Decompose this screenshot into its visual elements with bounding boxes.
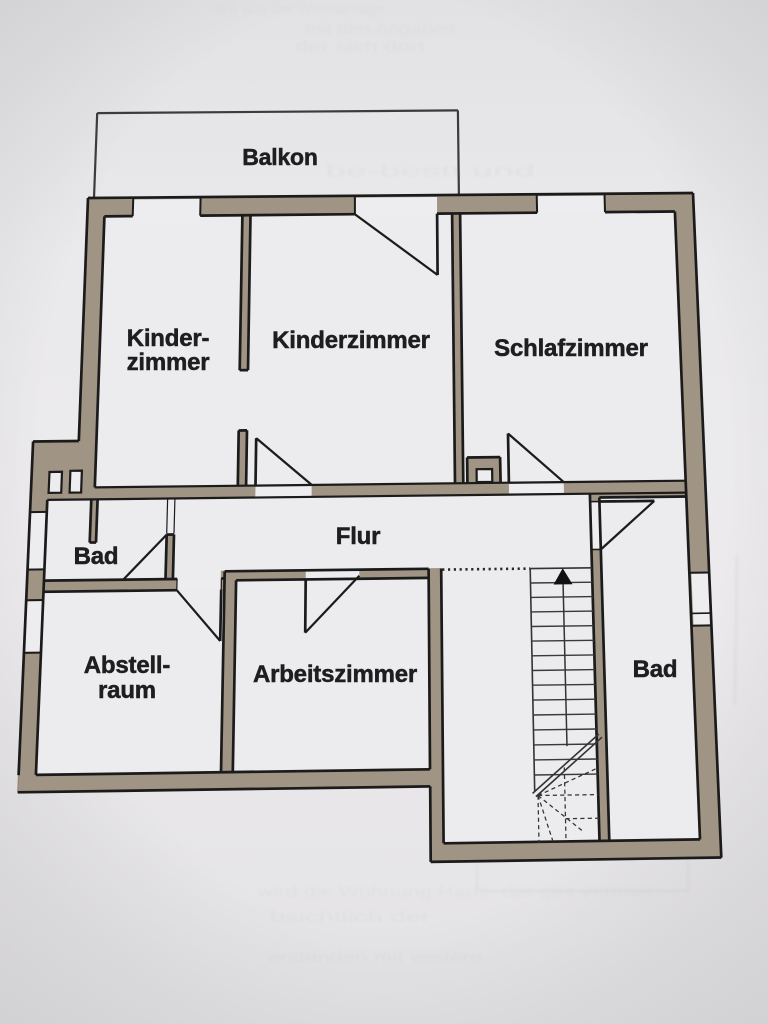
svg-text:Flur: Flur [336, 523, 381, 550]
svg-text:Kinder-: Kinder- [127, 325, 210, 352]
svg-text:be-bestt und: be-bestt und [325, 163, 535, 180]
svg-text:raum: raum [98, 677, 156, 704]
svg-text:Kinderzimmer: Kinderzimmer [272, 327, 430, 354]
svg-text:der sich dort: der sich dort [295, 39, 426, 56]
svg-text:Bad: Bad [74, 543, 119, 570]
svg-text:wird die Wohnung Haus- der ges: wird die Wohnung Haus- der ges vermiet [256, 884, 653, 901]
svg-text:mit den Angaben: mit den Angaben [305, 21, 455, 38]
svg-text:zimmer: zimmer [127, 349, 210, 376]
svg-text:ern aus der Wohnanlage: ern aus der Wohnanlage [215, 1, 385, 18]
svg-text:Abstell-: Abstell- [84, 652, 171, 679]
svg-text:Arbeitszimmer: Arbeitszimmer [253, 661, 417, 688]
svg-text:Balkon: Balkon [242, 144, 317, 170]
svg-text:Schlafzimmer: Schlafzimmer [494, 335, 648, 362]
svg-text:bsichtlich der: bsichtlich der [270, 909, 431, 926]
svg-text:Bad: Bad [633, 656, 678, 683]
svg-text:erstanden mit weitere: erstanden mit weitere [268, 949, 483, 966]
